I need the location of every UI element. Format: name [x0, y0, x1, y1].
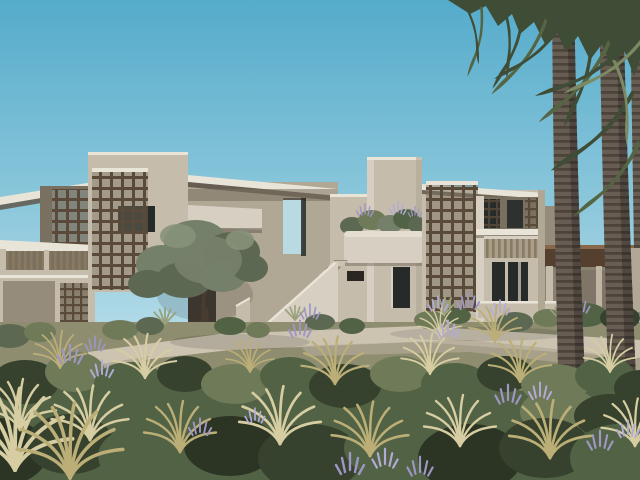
- scene-render: [0, 0, 640, 480]
- balcony-railing: [484, 236, 545, 258]
- entry-door: [393, 267, 410, 308]
- render-viewport: [0, 0, 640, 480]
- slat-band: [0, 249, 95, 271]
- terrace-opening: [283, 198, 306, 256]
- name-plaque: [347, 271, 364, 281]
- lattice-screen-corner-right: [426, 181, 478, 312]
